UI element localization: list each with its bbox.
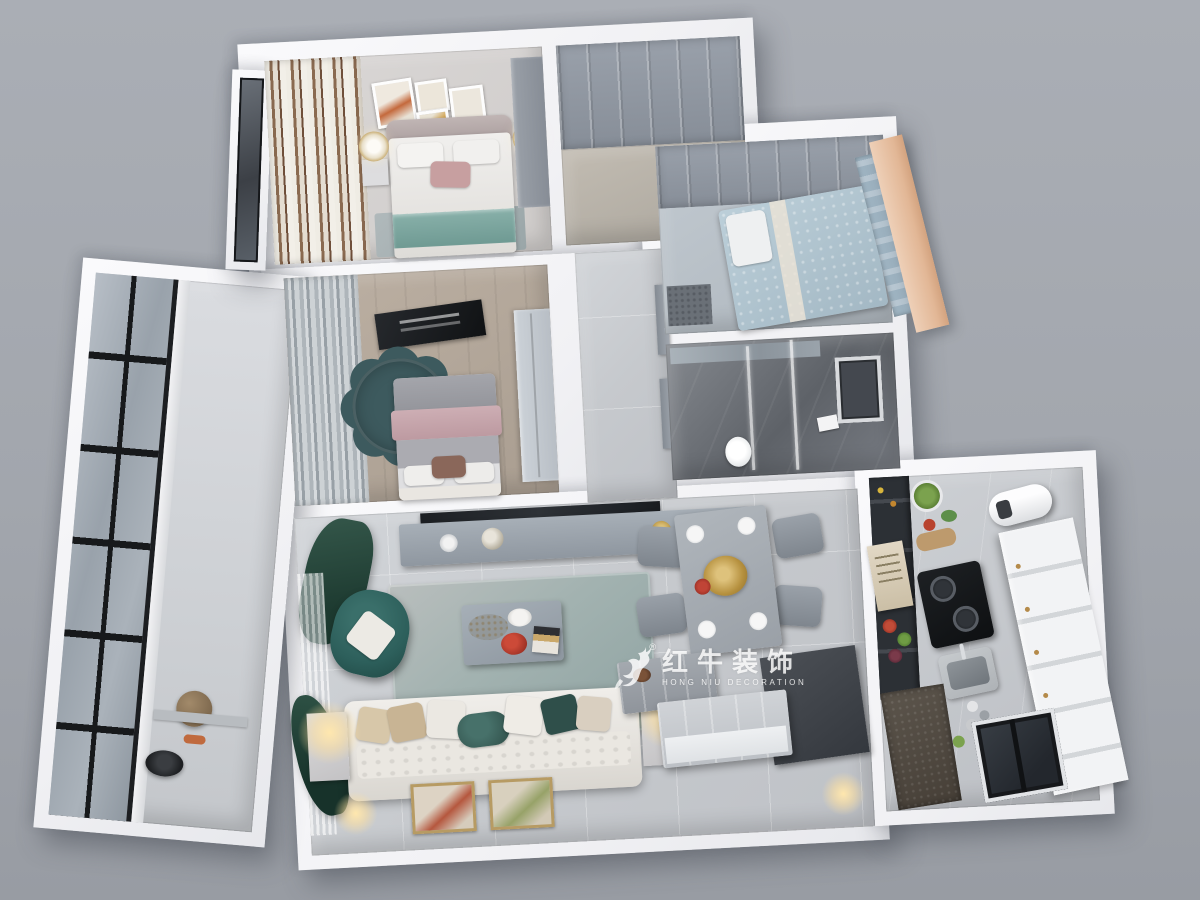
lime bbox=[952, 735, 965, 748]
foyer-wardrobe-top bbox=[556, 36, 745, 149]
bedroom3-pillow bbox=[725, 209, 773, 267]
nightstand-left bbox=[362, 159, 389, 186]
master-curtains bbox=[264, 56, 371, 265]
shower-glass-2 bbox=[790, 340, 800, 470]
slippers bbox=[183, 734, 206, 745]
dining-table bbox=[674, 504, 783, 656]
place-setting-4 bbox=[748, 611, 768, 631]
place-setting-3 bbox=[697, 619, 717, 639]
bathroom-window bbox=[835, 355, 884, 423]
bed-cushion-pink bbox=[430, 161, 470, 188]
kitchen-balcony-door bbox=[971, 708, 1068, 803]
entry-box-front-glow bbox=[664, 725, 788, 764]
armchair-pillow bbox=[344, 609, 397, 662]
cabinet-handle-4 bbox=[1043, 692, 1049, 698]
table-white-tray bbox=[507, 608, 532, 627]
watermark-brand-cn: 红牛装饰 bbox=[662, 649, 806, 675]
door-mullion bbox=[1009, 719, 1027, 793]
bedroom3-blanket-fold bbox=[769, 199, 806, 322]
kitchen-floor bbox=[869, 467, 1100, 812]
floor-art-1 bbox=[410, 781, 477, 834]
console-bowl bbox=[481, 527, 504, 550]
bedroom3-clothes-pile bbox=[667, 284, 713, 326]
second-bedroom-floor bbox=[284, 265, 560, 507]
tv-logo-lines bbox=[399, 313, 459, 324]
coffee-table bbox=[461, 600, 564, 665]
bathroom-floor bbox=[666, 333, 901, 481]
bedroom2-bed bbox=[393, 373, 501, 500]
sofa-pillow-6 bbox=[575, 695, 612, 732]
sink-bowl bbox=[946, 655, 991, 691]
table-red-flowers bbox=[501, 632, 528, 655]
cabinet-handle-2 bbox=[1024, 606, 1030, 612]
bull-logo-icon: ® bbox=[612, 645, 654, 691]
bathroom-mirror bbox=[670, 340, 821, 364]
bed-teal-throw bbox=[392, 208, 516, 248]
table-lamp-left bbox=[358, 131, 390, 163]
oven-light-2 bbox=[890, 501, 896, 507]
menu-lines bbox=[874, 549, 903, 583]
robot-vacuum bbox=[144, 749, 184, 778]
floor-art-2 bbox=[488, 777, 555, 830]
bottle-1 bbox=[967, 701, 979, 713]
wardrobe-divider bbox=[530, 313, 541, 477]
kitchen-doormat bbox=[880, 684, 962, 811]
balcony bbox=[33, 257, 314, 847]
greens bbox=[941, 509, 958, 522]
place-setting-2 bbox=[736, 516, 756, 536]
side-window-glass bbox=[234, 78, 264, 263]
apartment-plan bbox=[0, 0, 1200, 900]
cabinet-handle-1 bbox=[1015, 563, 1021, 569]
gas-cooktop bbox=[916, 560, 995, 650]
tomato bbox=[923, 519, 936, 532]
table-books bbox=[532, 626, 560, 654]
dining-chair-3 bbox=[771, 512, 825, 560]
bedroom2-tv-panel bbox=[374, 299, 486, 350]
dining-chair-4 bbox=[772, 584, 823, 627]
glass-door-sign bbox=[817, 414, 839, 432]
place-setting-1 bbox=[685, 524, 705, 544]
foyer-wardrobe-panels bbox=[556, 36, 745, 149]
entry-box-2 bbox=[657, 689, 793, 768]
floor-lamp-glow-2 bbox=[820, 771, 866, 817]
cutting-board bbox=[915, 526, 958, 553]
sofa-pillow-2 bbox=[386, 701, 428, 743]
oven-light-1 bbox=[877, 487, 883, 493]
sofa-pillow-4 bbox=[503, 694, 545, 736]
console-plate bbox=[439, 534, 458, 553]
kitchen-sink bbox=[937, 646, 999, 700]
burner-2 bbox=[950, 603, 981, 634]
watermark-brand-en: HONG NIU DECORATION bbox=[662, 678, 806, 687]
bed2-cushion-brown bbox=[431, 455, 466, 479]
balcony-floor bbox=[49, 273, 300, 833]
dining-chair-2 bbox=[635, 592, 688, 638]
floorplan-render: ® 红牛装饰 HONG NIU DECORATION bbox=[0, 0, 1200, 900]
cabinet-handle-3 bbox=[1034, 649, 1040, 655]
toilet bbox=[725, 436, 753, 467]
heater-vent bbox=[995, 499, 1013, 520]
master-bed bbox=[388, 132, 516, 258]
watermark: ® 红牛装饰 HONG NIU DECORATION bbox=[612, 638, 832, 698]
faucet bbox=[959, 644, 966, 660]
registered-mark: ® bbox=[649, 642, 656, 652]
master-bedroom-floor bbox=[264, 47, 552, 265]
burner-1 bbox=[928, 573, 959, 604]
bedroom3-bed bbox=[718, 185, 889, 332]
green-salad-plate bbox=[913, 482, 940, 509]
